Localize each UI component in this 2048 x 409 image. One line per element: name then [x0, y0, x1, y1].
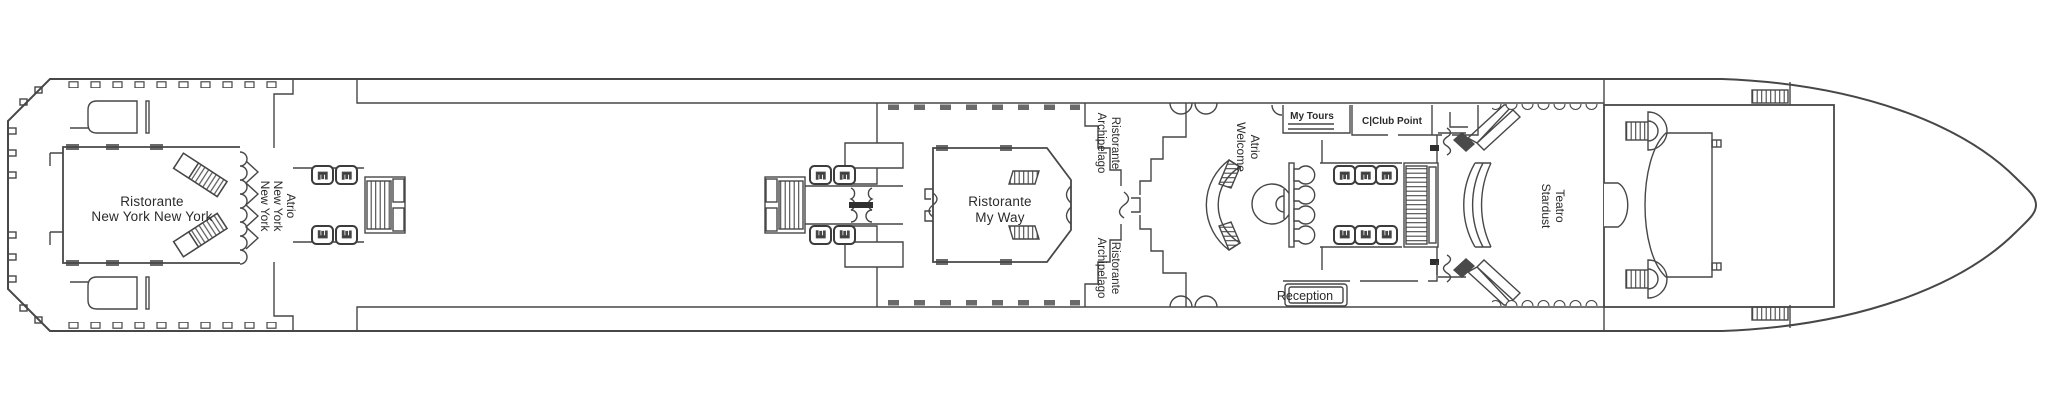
window-ticks: [58, 79, 288, 88]
svg-text:New York: New York: [271, 181, 285, 233]
label-reception: Reception: [1277, 289, 1333, 303]
label-archipelago-top: Ristorante Archipelago: [1095, 113, 1121, 174]
label-atrio-nyny: Atrio New York New York: [258, 181, 298, 233]
label-atrio-welcome: Atrio Welcome: [1234, 122, 1262, 172]
deck-plan-page: E: [0, 0, 2048, 409]
seat-bumps: [1492, 103, 1598, 111]
stairs-icon: [1752, 90, 1788, 103]
room-archipelago-core: [1120, 192, 1141, 218]
label-cclub-point: C|Club Point: [1362, 116, 1423, 127]
zigzag-wall: [246, 161, 258, 249]
svg-text:Archipelago: Archipelago: [1095, 238, 1107, 299]
stage-shell: [1645, 133, 1712, 277]
svg-text:Atrio: Atrio: [1248, 135, 1262, 160]
svg-text:Teatro: Teatro: [1553, 189, 1567, 223]
stairs-icon: [1626, 122, 1648, 140]
label-teatro-stardust: Teatro Stardust: [1539, 184, 1567, 229]
svg-text:Ristorante: Ristorante: [1109, 242, 1121, 294]
elevator-icon: [1376, 166, 1397, 184]
elevator-icon: [336, 166, 357, 184]
labels: Ristorante New York New York Atrio New Y…: [91, 111, 1567, 303]
label-ristorante-nyny: Ristorante New York New York: [91, 194, 212, 224]
annex-room: [70, 101, 137, 133]
inner-wall: [357, 79, 1604, 103]
svg-text:Atrio: Atrio: [284, 194, 298, 219]
theatre-ramp: [1468, 105, 1520, 150]
stairs-icon: [765, 177, 805, 233]
elevator-icon: [810, 166, 831, 184]
svg-text:Archipelago: Archipelago: [1095, 113, 1107, 174]
atrium-columns: [1289, 163, 1315, 247]
deck-plan: E: [0, 0, 2048, 409]
window-ticks: [888, 103, 1080, 111]
svg-text:Ristorante: Ristorante: [120, 194, 184, 209]
scalloped-wall: [240, 152, 247, 264]
svg-text:Welcome: Welcome: [1234, 122, 1248, 172]
svg-text:Stardust: Stardust: [1539, 184, 1553, 229]
stairs-icon: [1404, 163, 1438, 247]
stairs-icon: [365, 177, 405, 233]
label-archipelago-bottom: Ristorante Archipelago: [1095, 238, 1121, 299]
theatre-seating: [1464, 163, 1491, 247]
svg-text:Ristorante: Ristorante: [968, 194, 1032, 209]
stairs-icon: [174, 153, 227, 196]
stage-thrust: [1604, 183, 1628, 227]
svg-text:New York New York: New York New York: [91, 209, 212, 224]
svg-text:Ristorante: Ristorante: [1109, 117, 1121, 169]
elevator-icon: [1355, 166, 1376, 184]
stairs-icon: [1009, 171, 1039, 184]
svg-text:My Way: My Way: [975, 210, 1024, 225]
svg-text:New York: New York: [258, 181, 272, 233]
elevator-icon: [834, 166, 855, 184]
label-ristorante-my-way: Ristorante My Way: [968, 194, 1032, 225]
elevator-icon: [1334, 166, 1355, 184]
atrium-feature: [1252, 184, 1292, 224]
label-my-tours: My Tours: [1290, 111, 1334, 122]
door-icon: [1170, 103, 1217, 114]
elevator-icon: [312, 166, 333, 184]
